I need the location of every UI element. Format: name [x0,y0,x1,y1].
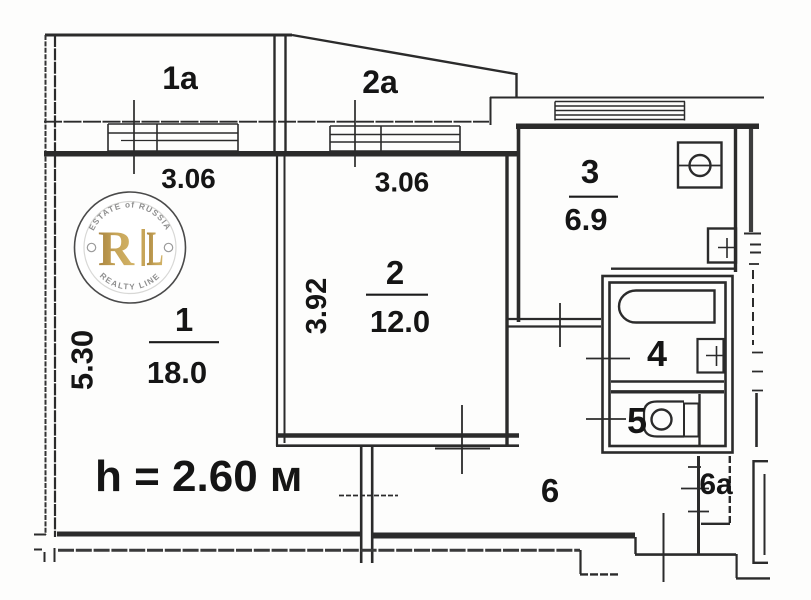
svg-text:12.0: 12.0 [370,304,430,339]
svg-text:5: 5 [627,400,647,441]
svg-text:5.30: 5.30 [65,330,100,390]
svg-text:6a: 6a [699,468,733,501]
svg-text:2a: 2a [362,64,398,100]
svg-text:3.06: 3.06 [161,163,216,194]
svg-text:4: 4 [647,333,667,374]
svg-text:1a: 1a [162,60,198,96]
svg-text:R: R [98,220,135,276]
svg-text:2: 2 [386,254,404,291]
svg-text:h = 2.60 м: h = 2.60 м [95,452,302,501]
svg-text:L: L [147,220,164,276]
svg-text:1: 1 [175,301,193,338]
svg-text:6.9: 6.9 [564,202,607,237]
svg-text:3.92: 3.92 [301,278,333,334]
svg-text:6: 6 [541,472,559,509]
svg-text:3: 3 [581,153,599,190]
svg-text:3.06: 3.06 [375,167,430,198]
svg-text:18.0: 18.0 [147,355,207,390]
